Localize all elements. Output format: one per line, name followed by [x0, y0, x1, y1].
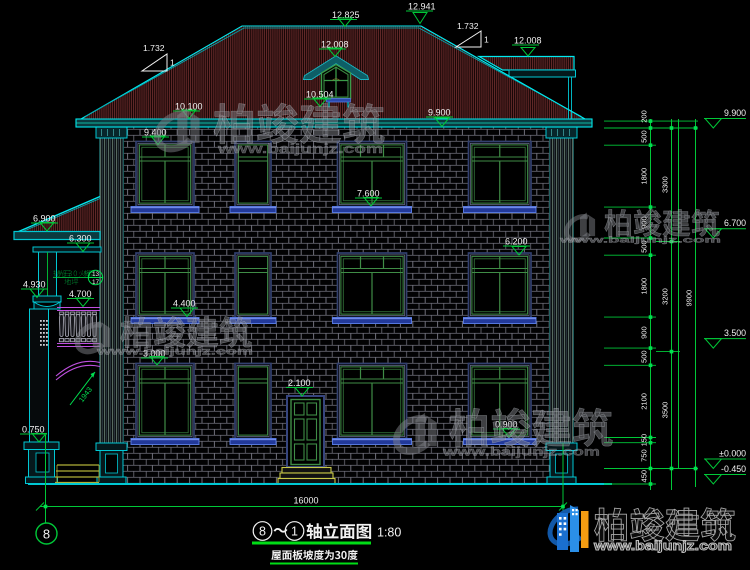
svg-text:1: 1 — [291, 525, 298, 539]
svg-text:1.732: 1.732 — [143, 43, 165, 53]
svg-text:4.400: 4.400 — [173, 299, 196, 309]
svg-text:9.900: 9.900 — [724, 108, 746, 118]
svg-text:500: 500 — [640, 350, 649, 363]
svg-text:9900: 9900 — [685, 290, 694, 307]
svg-text:6.200: 6.200 — [505, 237, 528, 247]
svg-text:3200: 3200 — [661, 288, 670, 305]
svg-text:www.baijunjz.com: www.baijunjz.com — [442, 444, 601, 458]
svg-text:2.100: 2.100 — [288, 378, 311, 388]
svg-text:www.baijunjz.com: www.baijunjz.com — [95, 347, 253, 358]
svg-text:750: 750 — [640, 449, 649, 462]
svg-text:16000: 16000 — [293, 496, 318, 506]
svg-text:17: 17 — [92, 279, 100, 286]
svg-text:www.baijunjz.com: www.baijunjz.com — [217, 141, 383, 156]
svg-text:6.300: 6.300 — [69, 234, 92, 244]
svg-text:12.941: 12.941 — [408, 2, 436, 12]
svg-text:200: 200 — [640, 110, 649, 123]
svg-text:www.baijunjz.com: www.baijunjz.com — [593, 539, 732, 553]
svg-text:www.baijunjz.com: www.baijunjz.com — [558, 235, 722, 245]
svg-text:2100: 2100 — [640, 393, 649, 410]
svg-text:900: 900 — [640, 326, 649, 339]
svg-text:±0.000: ±0.000 — [719, 449, 746, 459]
svg-text:1: 1 — [484, 35, 489, 45]
svg-text:9.900: 9.900 — [428, 108, 451, 118]
svg-text:6.700: 6.700 — [724, 218, 746, 228]
svg-text:500: 500 — [640, 130, 649, 143]
svg-text:8: 8 — [43, 527, 50, 542]
svg-text:150: 150 — [640, 434, 649, 447]
svg-text:3300: 3300 — [661, 176, 670, 193]
svg-text:4.930: 4.930 — [23, 280, 46, 290]
svg-text:12.008: 12.008 — [514, 36, 542, 46]
svg-text:1:80: 1:80 — [377, 526, 401, 540]
svg-text:1800: 1800 — [640, 278, 649, 295]
svg-text:-0.450: -0.450 — [721, 464, 746, 474]
svg-text:3500: 3500 — [661, 402, 670, 419]
svg-text:450: 450 — [640, 470, 649, 483]
svg-text:1800: 1800 — [640, 168, 649, 185]
svg-text:13: 13 — [92, 271, 100, 278]
svg-text:3.500: 3.500 — [724, 328, 746, 338]
svg-text:1.732: 1.732 — [457, 21, 479, 31]
svg-text:1: 1 — [170, 58, 175, 68]
svg-text:8: 8 — [259, 525, 266, 539]
